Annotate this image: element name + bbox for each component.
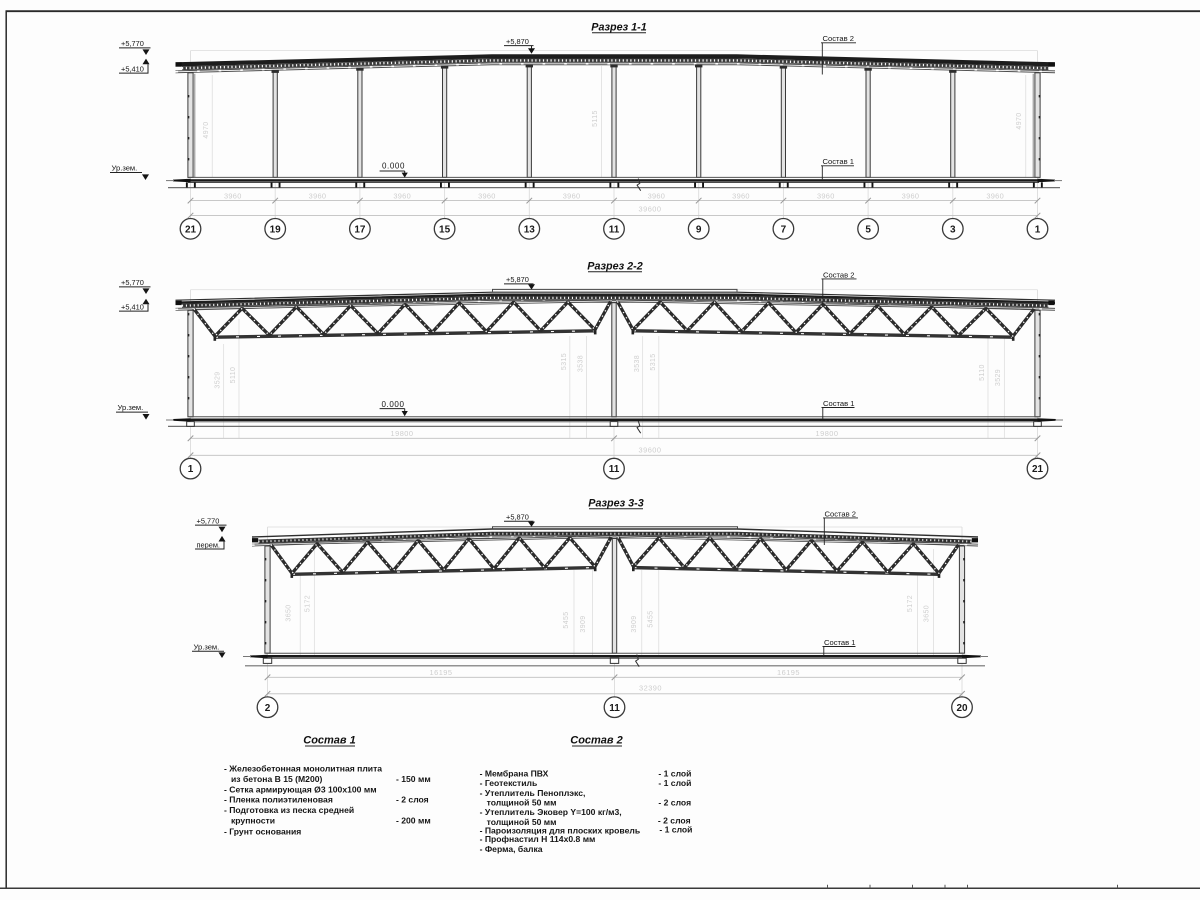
svg-text:+5,410: +5,410 <box>121 64 144 73</box>
svg-text:32390: 32390 <box>639 684 662 693</box>
svg-text:- 2 слоя: - 2 слоя <box>658 797 691 807</box>
svg-text:Ур.зем.: Ур.зем. <box>194 642 220 651</box>
svg-text:Состав 1: Состав 1 <box>823 399 855 408</box>
svg-text:0.000: 0.000 <box>382 400 405 409</box>
svg-text:Разрез 3-3: Разрез 3-3 <box>588 497 643 509</box>
svg-text:Состав 1: Состав 1 <box>303 734 356 746</box>
svg-text:+5,770: +5,770 <box>197 516 220 525</box>
svg-text:толщиной 50 мм: толщиной 50 мм <box>487 797 557 807</box>
svg-text:20: 20 <box>956 703 968 714</box>
svg-text:5172: 5172 <box>907 595 914 612</box>
svg-text:3960: 3960 <box>648 191 666 200</box>
svg-text:3650: 3650 <box>286 604 293 621</box>
svg-text:5115: 5115 <box>592 110 599 127</box>
svg-text:- Профнастил Н 114х0.8 мм: - Профнастил Н 114х0.8 мм <box>480 834 596 844</box>
svg-text:11: 11 <box>609 703 620 714</box>
svg-text:21: 21 <box>1032 464 1044 475</box>
svg-text:5110: 5110 <box>230 367 237 384</box>
svg-text:- 150 мм: - 150 мм <box>396 774 431 784</box>
svg-text:39600: 39600 <box>638 446 661 455</box>
svg-text:39600: 39600 <box>638 205 661 214</box>
svg-text:3960: 3960 <box>563 191 581 200</box>
svg-text:9: 9 <box>696 224 702 235</box>
svg-text:19800: 19800 <box>390 429 413 438</box>
svg-text:4970: 4970 <box>203 121 210 138</box>
svg-text:3960: 3960 <box>224 191 242 200</box>
svg-text:5110: 5110 <box>979 364 986 381</box>
svg-text:- 200 мм: - 200 мм <box>396 816 431 826</box>
svg-text:Состав 2: Состав 2 <box>823 270 855 279</box>
svg-text:- Подготовка из песка средней: - Подготовка из песка средней <box>224 805 354 815</box>
svg-text:Ур.зем.: Ур.зем. <box>118 403 144 412</box>
svg-text:3960: 3960 <box>732 191 750 200</box>
svg-text:- Утеплитель Пеноплэкс,: - Утеплитель Пеноплэкс, <box>480 788 586 798</box>
svg-text:+5,870: +5,870 <box>506 513 529 522</box>
svg-text:19: 19 <box>270 224 282 235</box>
svg-text:5315: 5315 <box>561 353 568 370</box>
svg-text:13: 13 <box>524 224 536 235</box>
svg-text:- Ферма, балка: - Ферма, балка <box>480 844 543 854</box>
svg-text:- Железобетонная монолитная п: - Железобетонная монолитная плита <box>224 764 382 774</box>
svg-text:3650: 3650 <box>924 605 931 622</box>
svg-text:+5,770: +5,770 <box>121 39 144 48</box>
svg-text:4970: 4970 <box>1016 112 1023 129</box>
svg-text:2: 2 <box>265 703 271 714</box>
svg-text:5455: 5455 <box>563 611 570 628</box>
svg-text:3: 3 <box>950 224 956 235</box>
svg-text:11: 11 <box>609 464 620 475</box>
svg-text:+5,870: +5,870 <box>506 37 529 46</box>
svg-text:3538: 3538 <box>578 355 585 372</box>
svg-text:Состав 2: Состав 2 <box>570 734 623 746</box>
svg-text:из бетона В 15 (М200): из бетона В 15 (М200) <box>231 774 323 784</box>
svg-text:- Утеплитель Эковер Y=100 кг/м: - Утеплитель Эковер Y=100 кг/м3, <box>480 807 622 817</box>
svg-text:15: 15 <box>439 224 451 235</box>
svg-text:19800: 19800 <box>815 429 838 438</box>
svg-text:- Сетка армирующая Ø3 100х100: - Сетка армирующая Ø3 100х100 мм <box>224 784 377 794</box>
svg-text:Состав 1: Состав 1 <box>823 157 855 166</box>
svg-text:- 1 слой: - 1 слой <box>658 778 691 788</box>
svg-text:3909: 3909 <box>580 615 587 632</box>
svg-text:Разрез 2-2: Разрез 2-2 <box>587 260 642 272</box>
svg-text:Состав 2: Состав 2 <box>823 34 855 43</box>
svg-text:3909: 3909 <box>631 615 638 632</box>
svg-text:- Геотекстиль: - Геотекстиль <box>480 778 538 788</box>
svg-text:- 1 слой: - 1 слой <box>659 824 692 834</box>
svg-text:1: 1 <box>188 464 194 475</box>
svg-text:0.000: 0.000 <box>382 162 405 171</box>
svg-text:1: 1 <box>1035 224 1041 235</box>
svg-text:- Грунт основания: - Грунт основания <box>224 826 301 836</box>
svg-text:5455: 5455 <box>648 610 655 627</box>
svg-text:17: 17 <box>354 224 366 235</box>
svg-text:- Пленка полиэтиленовая: - Пленка полиэтиленовая <box>224 795 333 805</box>
svg-text:Состав 2: Состав 2 <box>825 509 857 518</box>
svg-text:3960: 3960 <box>478 191 496 200</box>
svg-text:крупности: крупности <box>231 816 275 826</box>
svg-text:16195: 16195 <box>777 668 800 677</box>
svg-text:- 2 слоя: - 2 слоя <box>396 795 429 805</box>
svg-text:7: 7 <box>781 224 787 235</box>
svg-text:+5,770: +5,770 <box>121 278 144 287</box>
svg-text:5172: 5172 <box>305 595 312 612</box>
svg-text:3960: 3960 <box>902 191 920 200</box>
svg-text:5: 5 <box>865 224 871 235</box>
svg-text:перем.: перем. <box>197 540 220 549</box>
svg-text:3960: 3960 <box>309 191 327 200</box>
svg-text:11: 11 <box>609 224 620 235</box>
svg-text:- 1 слой: - 1 слой <box>658 768 691 778</box>
svg-text:Разрез 1-1: Разрез 1-1 <box>591 21 646 33</box>
svg-text:21: 21 <box>185 224 197 235</box>
svg-text:3529: 3529 <box>215 371 222 388</box>
svg-text:+5,410: +5,410 <box>121 302 144 311</box>
svg-text:3960: 3960 <box>393 191 411 200</box>
svg-text:3960: 3960 <box>986 191 1004 200</box>
svg-text:Ур.зем.: Ур.зем. <box>112 164 138 173</box>
svg-text:16195: 16195 <box>429 668 452 677</box>
svg-text:3538: 3538 <box>634 355 641 372</box>
svg-text:5315: 5315 <box>650 353 657 370</box>
svg-text:+5,870: +5,870 <box>506 275 529 284</box>
svg-text:- Мембрана ПВХ: - Мембрана ПВХ <box>480 768 549 778</box>
svg-text:3529: 3529 <box>995 369 1002 386</box>
svg-text:Состав 1: Состав 1 <box>824 638 856 647</box>
svg-text:3960: 3960 <box>817 191 835 200</box>
